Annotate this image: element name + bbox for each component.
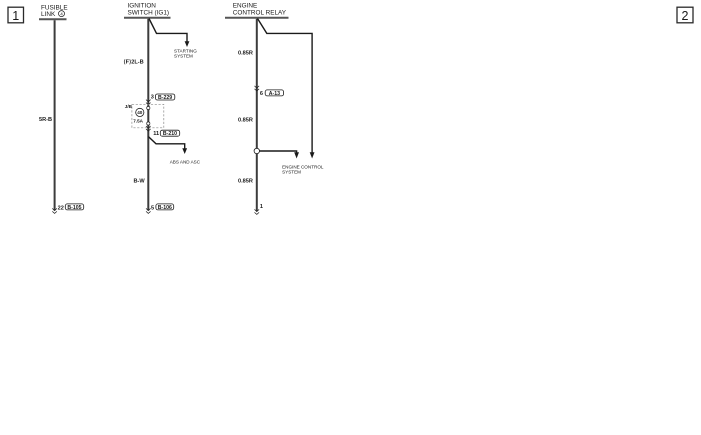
svg-text:B-105: B-105	[67, 205, 81, 211]
svg-text:IGNITION: IGNITION	[128, 3, 157, 10]
svg-text:40: 40	[137, 110, 143, 115]
svg-text:22: 22	[58, 205, 64, 211]
svg-text:1: 1	[260, 204, 263, 210]
svg-text:4: 4	[60, 11, 63, 16]
svg-text:1: 1	[12, 9, 19, 23]
svg-text:2: 2	[682, 9, 689, 23]
svg-text:⟨F⟩2L-B: ⟨F⟩2L-B	[124, 59, 144, 66]
svg-text:5R-B: 5R-B	[39, 117, 52, 123]
svg-text:B-W: B-W	[134, 178, 146, 184]
svg-text:SYSTEM: SYSTEM	[174, 54, 193, 59]
svg-text:CONTROL RELAY: CONTROL RELAY	[233, 10, 287, 17]
svg-text:5: 5	[151, 205, 154, 211]
svg-text:SYSTEM: SYSTEM	[282, 170, 301, 175]
svg-text:J/B: J/B	[125, 104, 133, 109]
svg-text:0.85R: 0.85R	[238, 118, 253, 124]
svg-text:3: 3	[151, 95, 154, 101]
svg-text:11: 11	[153, 131, 159, 137]
svg-text:SWITCH (IG1): SWITCH (IG1)	[128, 10, 170, 17]
svg-text:B-210: B-210	[163, 131, 177, 137]
svg-text:A-13: A-13	[269, 91, 280, 97]
svg-text:LINK: LINK	[41, 11, 56, 18]
svg-text:7.5A: 7.5A	[133, 119, 143, 124]
svg-text:0.85R: 0.85R	[238, 51, 253, 57]
svg-text:ABS AND ASC: ABS AND ASC	[170, 160, 201, 165]
svg-text:B-229: B-229	[158, 95, 172, 101]
svg-text:B-106: B-106	[158, 205, 172, 211]
svg-text:0.85R: 0.85R	[238, 178, 253, 184]
svg-text:ENGINE: ENGINE	[233, 3, 258, 10]
svg-text:6: 6	[260, 91, 263, 97]
